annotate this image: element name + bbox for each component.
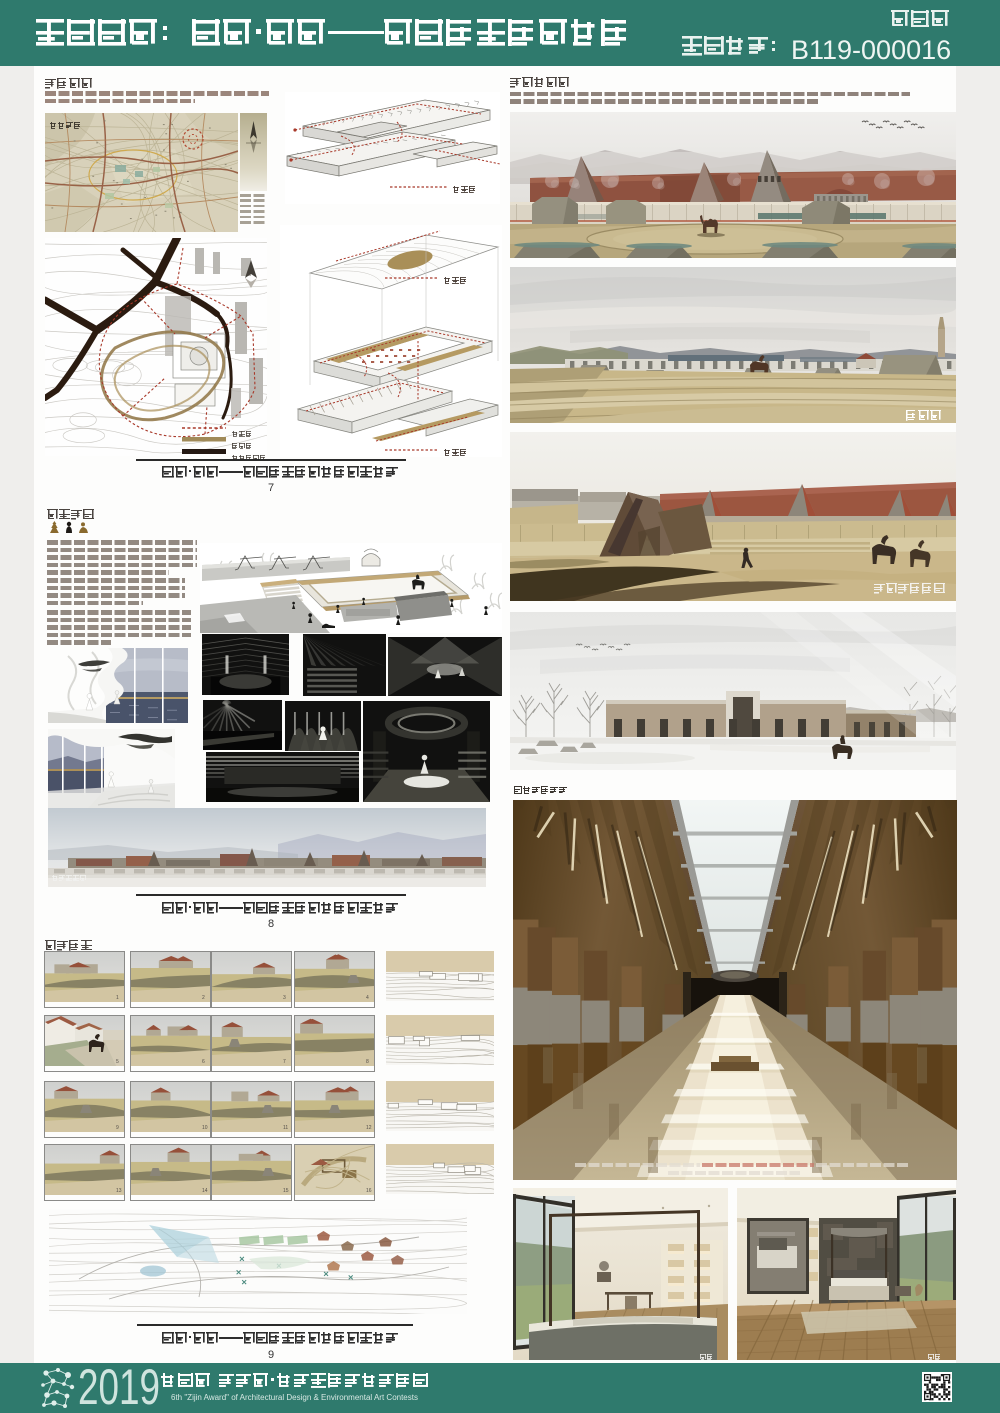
svg-text:6: 6 (202, 1059, 205, 1065)
svg-text:15: 15 (283, 1188, 289, 1194)
svg-text:5: 5 (116, 1059, 119, 1065)
svg-text:16: 16 (366, 1188, 372, 1194)
svg-text:4: 4 (366, 995, 369, 1001)
svg-text:2019: 2019 (78, 1366, 160, 1410)
svg-text:8: 8 (366, 1059, 369, 1065)
svg-text:12: 12 (366, 1125, 372, 1131)
svg-text:7: 7 (283, 1059, 286, 1065)
svg-text:9: 9 (116, 1125, 119, 1131)
svg-text:1: 1 (116, 995, 119, 1001)
svg-text:2: 2 (202, 995, 205, 1001)
svg-text:10: 10 (202, 1125, 208, 1131)
svg-text:3: 3 (283, 995, 286, 1001)
svg-text:14: 14 (202, 1188, 208, 1194)
svg-text:13: 13 (116, 1188, 122, 1194)
svg-text:11: 11 (283, 1125, 288, 1131)
